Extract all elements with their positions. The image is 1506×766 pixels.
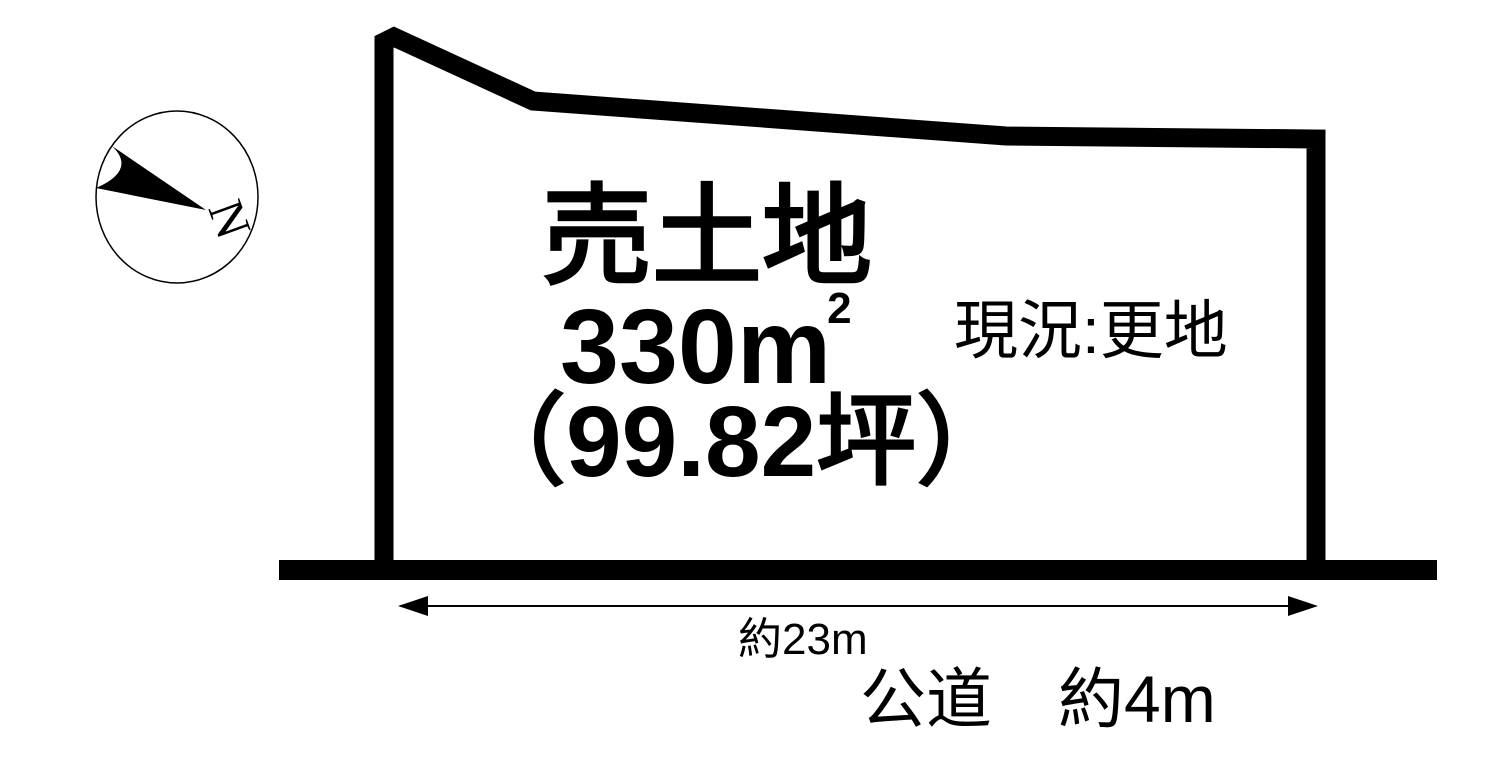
compass: N [96,111,263,283]
frontage-dimension-label: 約23m [738,618,868,662]
land-plot-diagram: N 売土地 330m2 （99.82坪） 現況:更地 約23m 公道 約4m [0,0,1506,766]
parcel-title: 売土地 [542,183,872,293]
parcel-area: 330m2 [560,287,852,400]
parcel-area-tsubo: （99.82坪） [466,392,1016,492]
frontage-dimension-arrow [398,596,1318,616]
dimension-arrowhead-right [1288,596,1318,616]
road-label: 公道 約4m [860,666,1216,732]
parcel-area-superscript: 2 [827,284,851,333]
dimension-arrowhead-left [398,596,428,616]
parcel-status: 現況:更地 [954,299,1228,363]
